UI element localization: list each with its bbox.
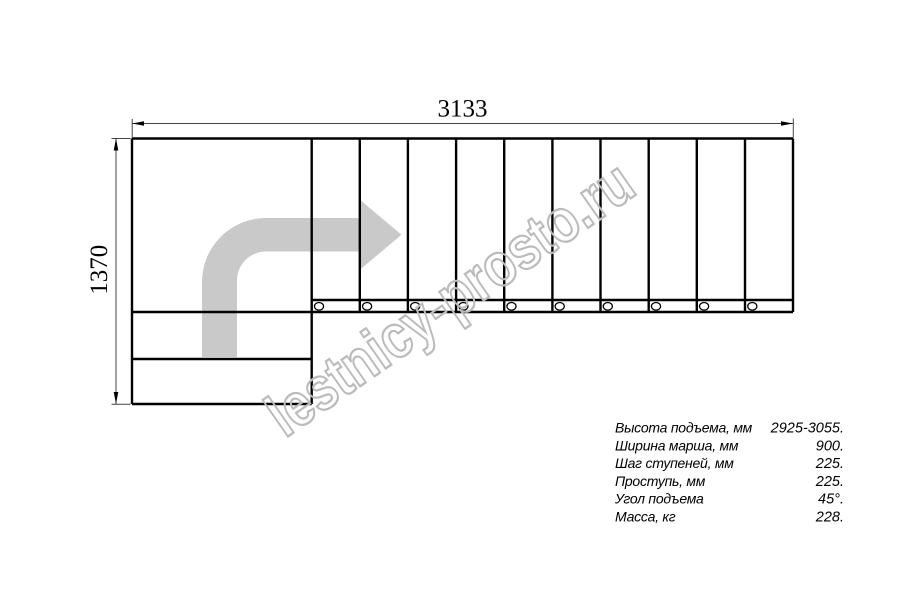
svg-text:Шаг ступеней, мм: Шаг ступеней, мм: [615, 455, 734, 471]
svg-text:225.: 225.: [815, 456, 844, 472]
svg-text:Ширина марша, мм: Ширина марша, мм: [615, 437, 739, 453]
svg-text:Проступь, мм: Проступь, мм: [615, 473, 706, 489]
svg-text:45°.: 45°.: [818, 492, 844, 508]
svg-text:1370: 1370: [86, 245, 113, 295]
svg-text:228.: 228.: [815, 509, 844, 525]
svg-text:Высота подъема, мм: Высота подъема, мм: [615, 420, 753, 436]
svg-text:900.: 900.: [816, 438, 844, 454]
svg-text:Масса, кг: Масса, кг: [615, 508, 676, 524]
svg-text:2925-3055.: 2925-3055.: [770, 421, 844, 437]
svg-text:3133: 3133: [438, 96, 488, 123]
svg-text:225.: 225.: [815, 474, 844, 490]
svg-text:Угол подъема: Угол подъема: [614, 491, 704, 507]
